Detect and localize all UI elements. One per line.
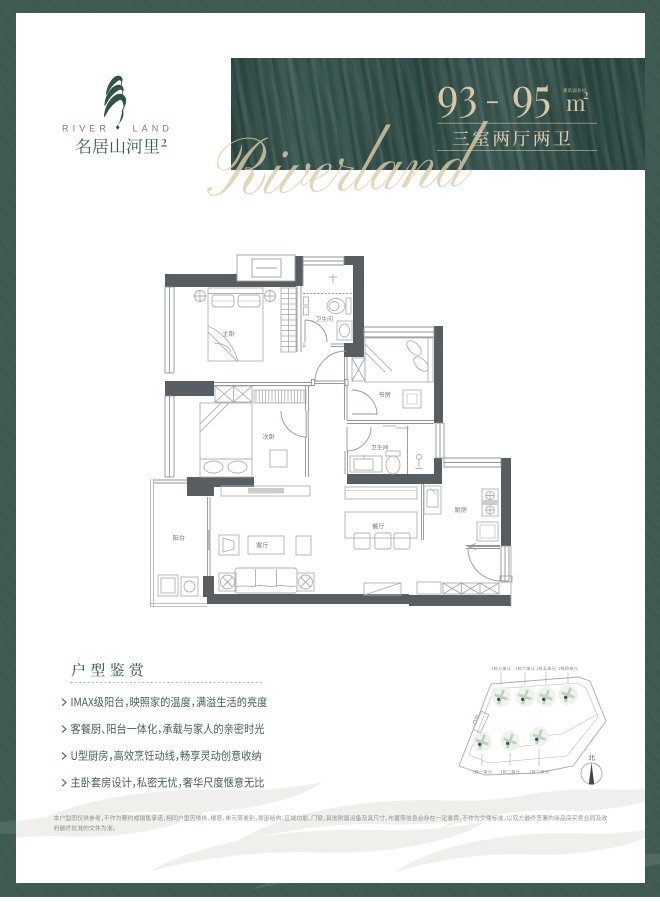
svg-text:RIVER: RIVER bbox=[62, 124, 110, 134]
svg-text:LAND: LAND bbox=[133, 124, 173, 134]
